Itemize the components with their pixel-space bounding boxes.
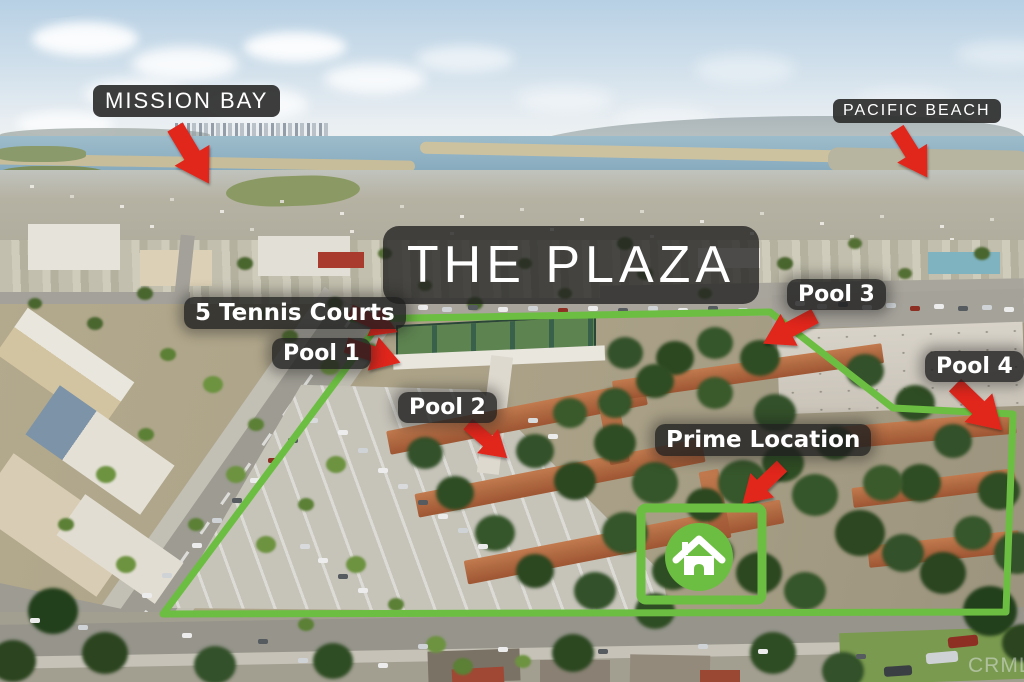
pacific-beach-label: PACIFIC BEACH bbox=[833, 99, 1001, 123]
aerial-photo-stage: MISSION BAY PACIFIC BEACH THE PLAZA 5 Te… bbox=[0, 0, 1024, 682]
plaza-title: THE PLAZA bbox=[383, 226, 759, 304]
crmls-watermark: CRMLS bbox=[968, 654, 1024, 678]
mission-bay-label: MISSION BAY bbox=[93, 85, 280, 117]
mission-bay-arrow-icon bbox=[158, 117, 227, 195]
pool-1-callout: Pool 1 bbox=[272, 338, 371, 369]
prime-location-callout: Prime Location bbox=[655, 424, 871, 456]
pacific-beach-arrow-icon bbox=[882, 120, 942, 187]
pool-2-callout: Pool 2 bbox=[398, 392, 497, 423]
home-marker bbox=[641, 508, 762, 600]
pool-4-callout: Pool 4 bbox=[925, 351, 1024, 382]
tennis-courts-callout: 5 Tennis Courts bbox=[184, 297, 406, 329]
pool-3-callout: Pool 3 bbox=[787, 279, 886, 310]
